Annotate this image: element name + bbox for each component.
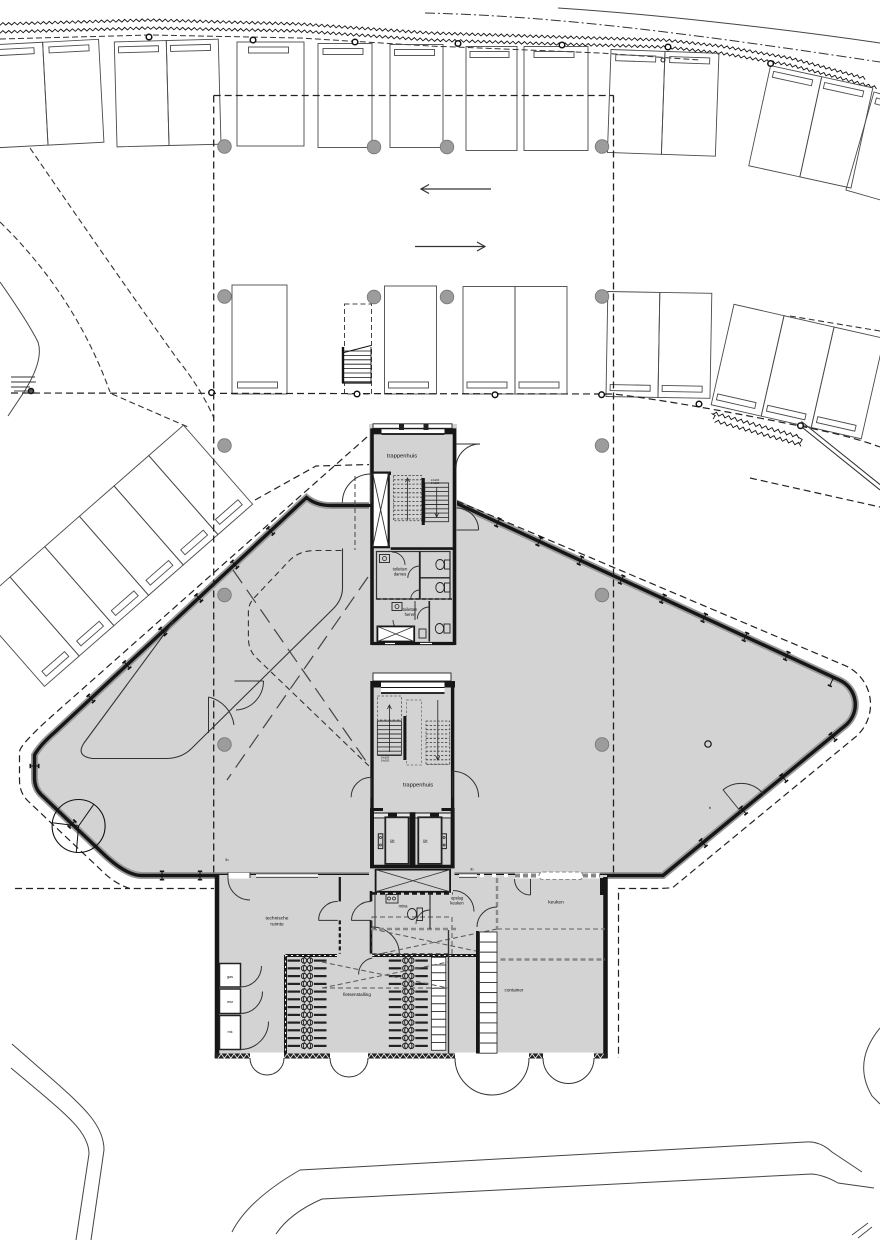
svg-text:14x200: 14x200 (431, 481, 440, 485)
svg-text:msr: msr (227, 1000, 234, 1004)
svg-text:miva: miva (399, 904, 409, 909)
svg-text:keuken: keuken (450, 901, 464, 906)
svg-text:keuken: keuken (548, 900, 564, 906)
svg-text:mk: mk (227, 1030, 232, 1034)
svg-text:fietsenstalling: fietsenstalling (343, 992, 371, 997)
svg-text:trappenhuis: trappenhuis (387, 454, 417, 460)
svg-text:heren: heren (405, 612, 416, 617)
svg-text:ruimte: ruimte (270, 922, 284, 928)
svg-text:14x200: 14x200 (381, 759, 390, 763)
svg-text:trappenhuis: trappenhuis (403, 783, 433, 789)
svg-text:container: container (505, 988, 524, 993)
svg-text:gas: gas (227, 975, 233, 979)
svg-text:dames: dames (394, 572, 407, 577)
svg-text:technische: technische (266, 916, 289, 922)
